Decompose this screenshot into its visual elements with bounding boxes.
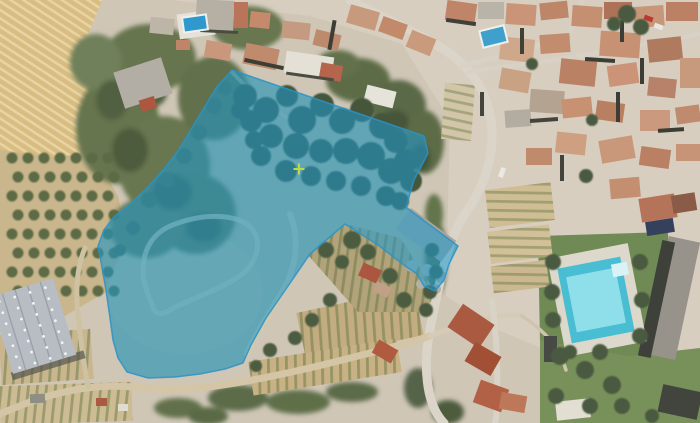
tree [396, 292, 412, 308]
olive-tree [87, 191, 98, 202]
olive-tree [109, 172, 120, 183]
tree [576, 361, 594, 379]
olive-tree [55, 191, 66, 202]
tree [545, 312, 561, 328]
olive-tree [45, 172, 56, 183]
olive-tree [7, 153, 18, 164]
garden-rows [441, 83, 475, 141]
tree [618, 5, 636, 23]
roof [539, 1, 569, 21]
olive-tree [71, 229, 82, 240]
roof [561, 96, 593, 118]
olive-tree [71, 191, 82, 202]
satellite-map-view[interactable] [0, 0, 700, 423]
tree [288, 331, 302, 345]
tree [360, 244, 376, 260]
olive-tree [7, 191, 18, 202]
olive-tree [71, 153, 82, 164]
roof [526, 148, 552, 165]
tree [323, 293, 337, 307]
scrub-patch [326, 382, 378, 402]
olive-tree [87, 229, 98, 240]
tree [582, 398, 598, 414]
roof [520, 28, 524, 54]
scrub-patch [266, 390, 330, 414]
olive-tree [23, 229, 34, 240]
roof [529, 89, 565, 114]
roof [609, 177, 641, 200]
tree [632, 328, 648, 344]
roof [676, 144, 700, 161]
roof [595, 100, 625, 123]
roof [505, 3, 536, 26]
olive-tree [87, 267, 98, 278]
olive-tree [77, 172, 88, 183]
tree [263, 343, 277, 357]
roof [504, 109, 531, 128]
olive-tree [23, 191, 34, 202]
olive-tree [29, 248, 40, 259]
olive-tree [13, 210, 24, 221]
roof [616, 92, 620, 122]
roof [675, 104, 700, 124]
olive-tree [103, 153, 114, 164]
scrub-patch [112, 128, 148, 172]
olive-tree [29, 210, 40, 221]
tree [548, 388, 564, 404]
olive-tree [93, 286, 104, 297]
olive-tree [23, 267, 34, 278]
tree [614, 398, 630, 414]
olive-tree [29, 172, 40, 183]
roof [118, 404, 128, 411]
roof [539, 33, 570, 54]
roof [30, 394, 45, 404]
roof [671, 192, 698, 214]
tree [645, 409, 659, 423]
roof [647, 77, 677, 99]
olive-tree [45, 210, 56, 221]
olive-tree [55, 229, 66, 240]
tree [607, 17, 621, 31]
tree [250, 360, 262, 372]
tree [634, 292, 650, 308]
olive-tree [7, 267, 18, 278]
roof [560, 155, 564, 181]
olive-tree [61, 210, 72, 221]
roof [249, 11, 271, 29]
tree [551, 347, 569, 365]
tree [579, 169, 593, 183]
roof [96, 398, 107, 406]
roof [640, 110, 670, 131]
olive-tree [103, 191, 114, 202]
olive-tree [55, 267, 66, 278]
aerial-imagery [0, 0, 700, 423]
olive-tree [13, 172, 24, 183]
tree [592, 344, 608, 360]
roof [680, 58, 700, 88]
tree [305, 313, 319, 327]
roof [607, 62, 640, 87]
tree [545, 254, 561, 270]
tree [632, 254, 648, 270]
tree [343, 231, 361, 249]
olive-tree [13, 248, 24, 259]
tree [633, 19, 649, 35]
olive-tree [55, 153, 66, 164]
roof [281, 21, 311, 41]
olive-tree [61, 286, 72, 297]
roof [234, 2, 248, 28]
tree [335, 255, 349, 269]
tree [419, 303, 433, 317]
olive-tree [39, 267, 50, 278]
garden-rows [485, 182, 555, 228]
pool-water-inner [566, 268, 626, 333]
tree [544, 284, 560, 300]
roof [176, 40, 190, 50]
olive-tree [23, 153, 34, 164]
roof [149, 17, 175, 35]
tree [603, 376, 621, 394]
tree [586, 114, 598, 126]
olive-tree [61, 248, 72, 259]
roof [640, 58, 644, 84]
olive-tree [39, 229, 50, 240]
roof [559, 58, 597, 87]
olive-tree [7, 229, 18, 240]
roof [666, 2, 698, 21]
roof [571, 5, 602, 28]
olive-tree [61, 172, 72, 183]
roof [480, 92, 484, 116]
olive-tree [39, 191, 50, 202]
roof [478, 2, 504, 19]
roof [555, 131, 587, 155]
olive-tree [77, 210, 88, 221]
olive-tree [93, 172, 104, 183]
olive-tree [87, 153, 98, 164]
tree [382, 268, 398, 284]
olive-tree [39, 153, 50, 164]
roof [647, 36, 683, 62]
olive-tree [45, 248, 56, 259]
tree [526, 58, 538, 70]
olive-tree [93, 210, 104, 221]
